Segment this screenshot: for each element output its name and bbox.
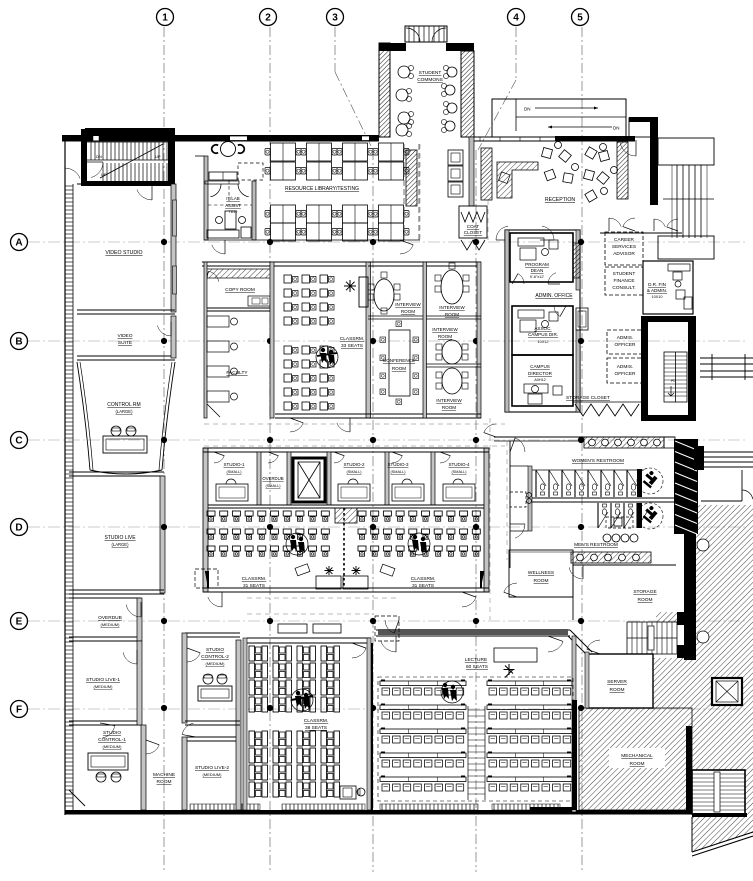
svg-text:DN: DN [524, 107, 531, 112]
svg-text:ROOM: ROOM [392, 366, 406, 371]
svg-text:CLASSRM.: CLASSRM. [411, 576, 436, 582]
svg-text:OVERDUB: OVERDUB [262, 476, 283, 481]
svg-text:ROOM: ROOM [445, 312, 459, 317]
svg-text:(SMALL): (SMALL) [266, 484, 282, 488]
svg-text:MEN'S RESTROOM: MEN'S RESTROOM [574, 542, 618, 548]
svg-text:31 SEATS: 31 SEATS [243, 583, 265, 589]
svg-text:CONFERENCE: CONFERENCE [383, 358, 415, 363]
svg-text:CAREER: CAREER [614, 237, 635, 243]
svg-text:E: E [16, 617, 23, 628]
svg-text:SUITE: SUITE [118, 340, 132, 346]
svg-text:ASSIST: ASSIST [225, 203, 241, 208]
svg-text:3: 3 [332, 13, 338, 24]
svg-text:COPY ROOM: COPY ROOM [225, 287, 255, 293]
svg-text:COMMONS: COMMONS [417, 77, 443, 83]
svg-text:STUDIO-1: STUDIO-1 [223, 462, 244, 467]
svg-text:INTERVIEW: INTERVIEW [439, 305, 465, 310]
svg-text:38 SEATS: 38 SEATS [305, 725, 327, 731]
svg-text:STUDIO LIVE-1: STUDIO LIVE-1 [86, 677, 120, 683]
svg-text:ROOM: ROOM [638, 597, 653, 603]
svg-text:INTERVIEW: INTERVIEW [432, 327, 458, 332]
svg-text:CLOSET: CLOSET [464, 230, 483, 235]
svg-text:OFFICER: OFFICER [614, 371, 636, 377]
svg-text:ADMIS.: ADMIS. [617, 335, 634, 341]
svg-text:ADMIS.: ADMIS. [617, 364, 634, 370]
svg-text:(MEDIUM): (MEDIUM) [94, 684, 114, 689]
svg-text:(SMALL): (SMALL) [227, 470, 243, 474]
svg-text:OFFICER: OFFICER [614, 342, 636, 348]
svg-text:FINANCE: FINANCE [613, 278, 634, 284]
svg-text:(SMALL): (SMALL) [347, 470, 363, 474]
svg-text:60 SEATS: 60 SEATS [466, 664, 488, 670]
svg-text:MECHANICAL: MECHANICAL [621, 753, 653, 759]
svg-text:(MEDIUM): (MEDIUM) [101, 622, 121, 627]
svg-text:CLASSRM.: CLASSRM. [242, 576, 267, 582]
svg-text:(LARGE): (LARGE) [112, 542, 130, 547]
svg-text:B: B [15, 337, 22, 348]
svg-text:ADMIN. OFFICE: ADMIN. OFFICE [535, 293, 573, 299]
svg-text:C: C [15, 436, 22, 447]
svg-text:2: 2 [265, 13, 271, 24]
svg-text:33 SEATS: 33 SEATS [341, 343, 363, 349]
svg-text:5: 5 [577, 13, 583, 24]
svg-text:CAMPUS: CAMPUS [530, 364, 550, 369]
svg-text:(SMALL): (SMALL) [452, 470, 468, 474]
svg-text:CLASSRM.: CLASSRM. [340, 336, 365, 342]
svg-text:ROOM: ROOM [610, 687, 625, 693]
svg-text:PD: PD [671, 379, 676, 383]
svg-text:ROOM: ROOM [157, 779, 172, 785]
svg-text:WOMEN'S RESTROOM: WOMEN'S RESTROOM [572, 458, 624, 464]
svg-text:10X10: 10X10 [652, 295, 663, 299]
svg-text:A: A [15, 238, 22, 249]
svg-text:INTERVIEW: INTERVIEW [395, 302, 421, 307]
svg-text:10X12: 10X12 [538, 340, 549, 344]
svg-text:D: D [15, 523, 22, 534]
svg-text:SERVICES: SERVICES [612, 244, 636, 250]
svg-text:(MEDIUM): (MEDIUM) [206, 661, 226, 666]
svg-text:OVERDUB: OVERDUB [98, 615, 122, 621]
svg-text:UP: UP [155, 154, 161, 159]
svg-text:ADVISOR: ADVISOR [613, 251, 635, 257]
svg-text:4: 4 [513, 13, 519, 24]
svg-text:CONSULT.: CONSULT. [612, 285, 635, 291]
svg-text:31 SEATS: 31 SEATS [412, 583, 434, 589]
svg-text:& ADMIN.: & ADMIN. [647, 288, 667, 293]
svg-text:STUDIO LIVE-2: STUDIO LIVE-2 [195, 765, 229, 771]
svg-text:MACHINE: MACHINE [153, 772, 175, 778]
svg-text:ROOM: ROOM [534, 578, 549, 584]
svg-text:IT/LAB: IT/LAB [226, 196, 239, 201]
svg-text:(MEDIUM): (MEDIUM) [203, 772, 223, 777]
svg-text:ROOM: ROOM [401, 309, 415, 314]
svg-text:ASSOC.: ASSOC. [534, 326, 551, 331]
svg-text:STORAGE CLOSET: STORAGE CLOSET [566, 395, 610, 401]
svg-text:DIRECTOR: DIRECTOR [528, 371, 553, 376]
svg-text:PROGRAM: PROGRAM [525, 262, 549, 267]
svg-text:STUDIO LIVE: STUDIO LIVE [104, 535, 136, 541]
svg-text:COAT: COAT [467, 224, 480, 229]
svg-text:DN: DN [613, 126, 620, 131]
svg-text:D.R. FIN: D.R. FIN [648, 282, 666, 287]
svg-text:F: F [16, 705, 22, 716]
svg-text:STUDIO-4: STUDIO-4 [448, 462, 469, 467]
svg-text:CONTROL-2: CONTROL-2 [201, 654, 229, 660]
svg-text:(MEDIUM): (MEDIUM) [103, 744, 123, 749]
svg-text:ROOM: ROOM [630, 761, 645, 767]
svg-text:VIDEO STUDIO: VIDEO STUDIO [105, 250, 142, 256]
svg-text:WELLNESS: WELLNESS [528, 570, 554, 576]
svg-text:CAMPUS DIR.: CAMPUS DIR. [528, 332, 558, 337]
svg-text:1: 1 [162, 13, 168, 24]
svg-text:STUDIO-3: STUDIO-3 [387, 462, 408, 467]
svg-text:CLASSRM.: CLASSRM. [304, 718, 329, 724]
svg-text:STUDIO: STUDIO [103, 730, 121, 736]
svg-text:VIDEO: VIDEO [118, 333, 133, 339]
svg-text:DN: DN [96, 154, 102, 159]
svg-text:UP: UP [101, 172, 107, 177]
svg-text:STORAGE: STORAGE [633, 589, 656, 595]
svg-text:9'-6"x12': 9'-6"x12' [530, 275, 545, 279]
svg-text:LECTURE: LECTURE [465, 657, 487, 663]
svg-text:STUDENT: STUDENT [419, 70, 442, 76]
svg-text:DEAN: DEAN [531, 268, 544, 273]
svg-text:SERVER: SERVER [607, 679, 627, 685]
svg-text:STUDIO: STUDIO [206, 647, 224, 653]
svg-text:CONTROL RM: CONTROL RM [107, 402, 140, 408]
svg-text:(SMALL): (SMALL) [391, 470, 407, 474]
svg-text:INTERVIEW: INTERVIEW [436, 398, 462, 403]
svg-text:ROOM: ROOM [438, 334, 452, 339]
svg-text:(LARGE): (LARGE) [116, 409, 134, 414]
svg-text:A0H12: A0H12 [534, 378, 546, 382]
svg-text:RESOURCE LIBRARY/TESTING: RESOURCE LIBRARY/TESTING [285, 186, 359, 192]
svg-text:STUDIO-2: STUDIO-2 [343, 462, 364, 467]
svg-text:RECEPTION: RECEPTION [545, 197, 576, 203]
svg-text:CONTROL-1: CONTROL-1 [98, 737, 126, 743]
svg-text:STUDENT: STUDENT [613, 271, 636, 277]
svg-text:ROOM: ROOM [442, 405, 456, 410]
